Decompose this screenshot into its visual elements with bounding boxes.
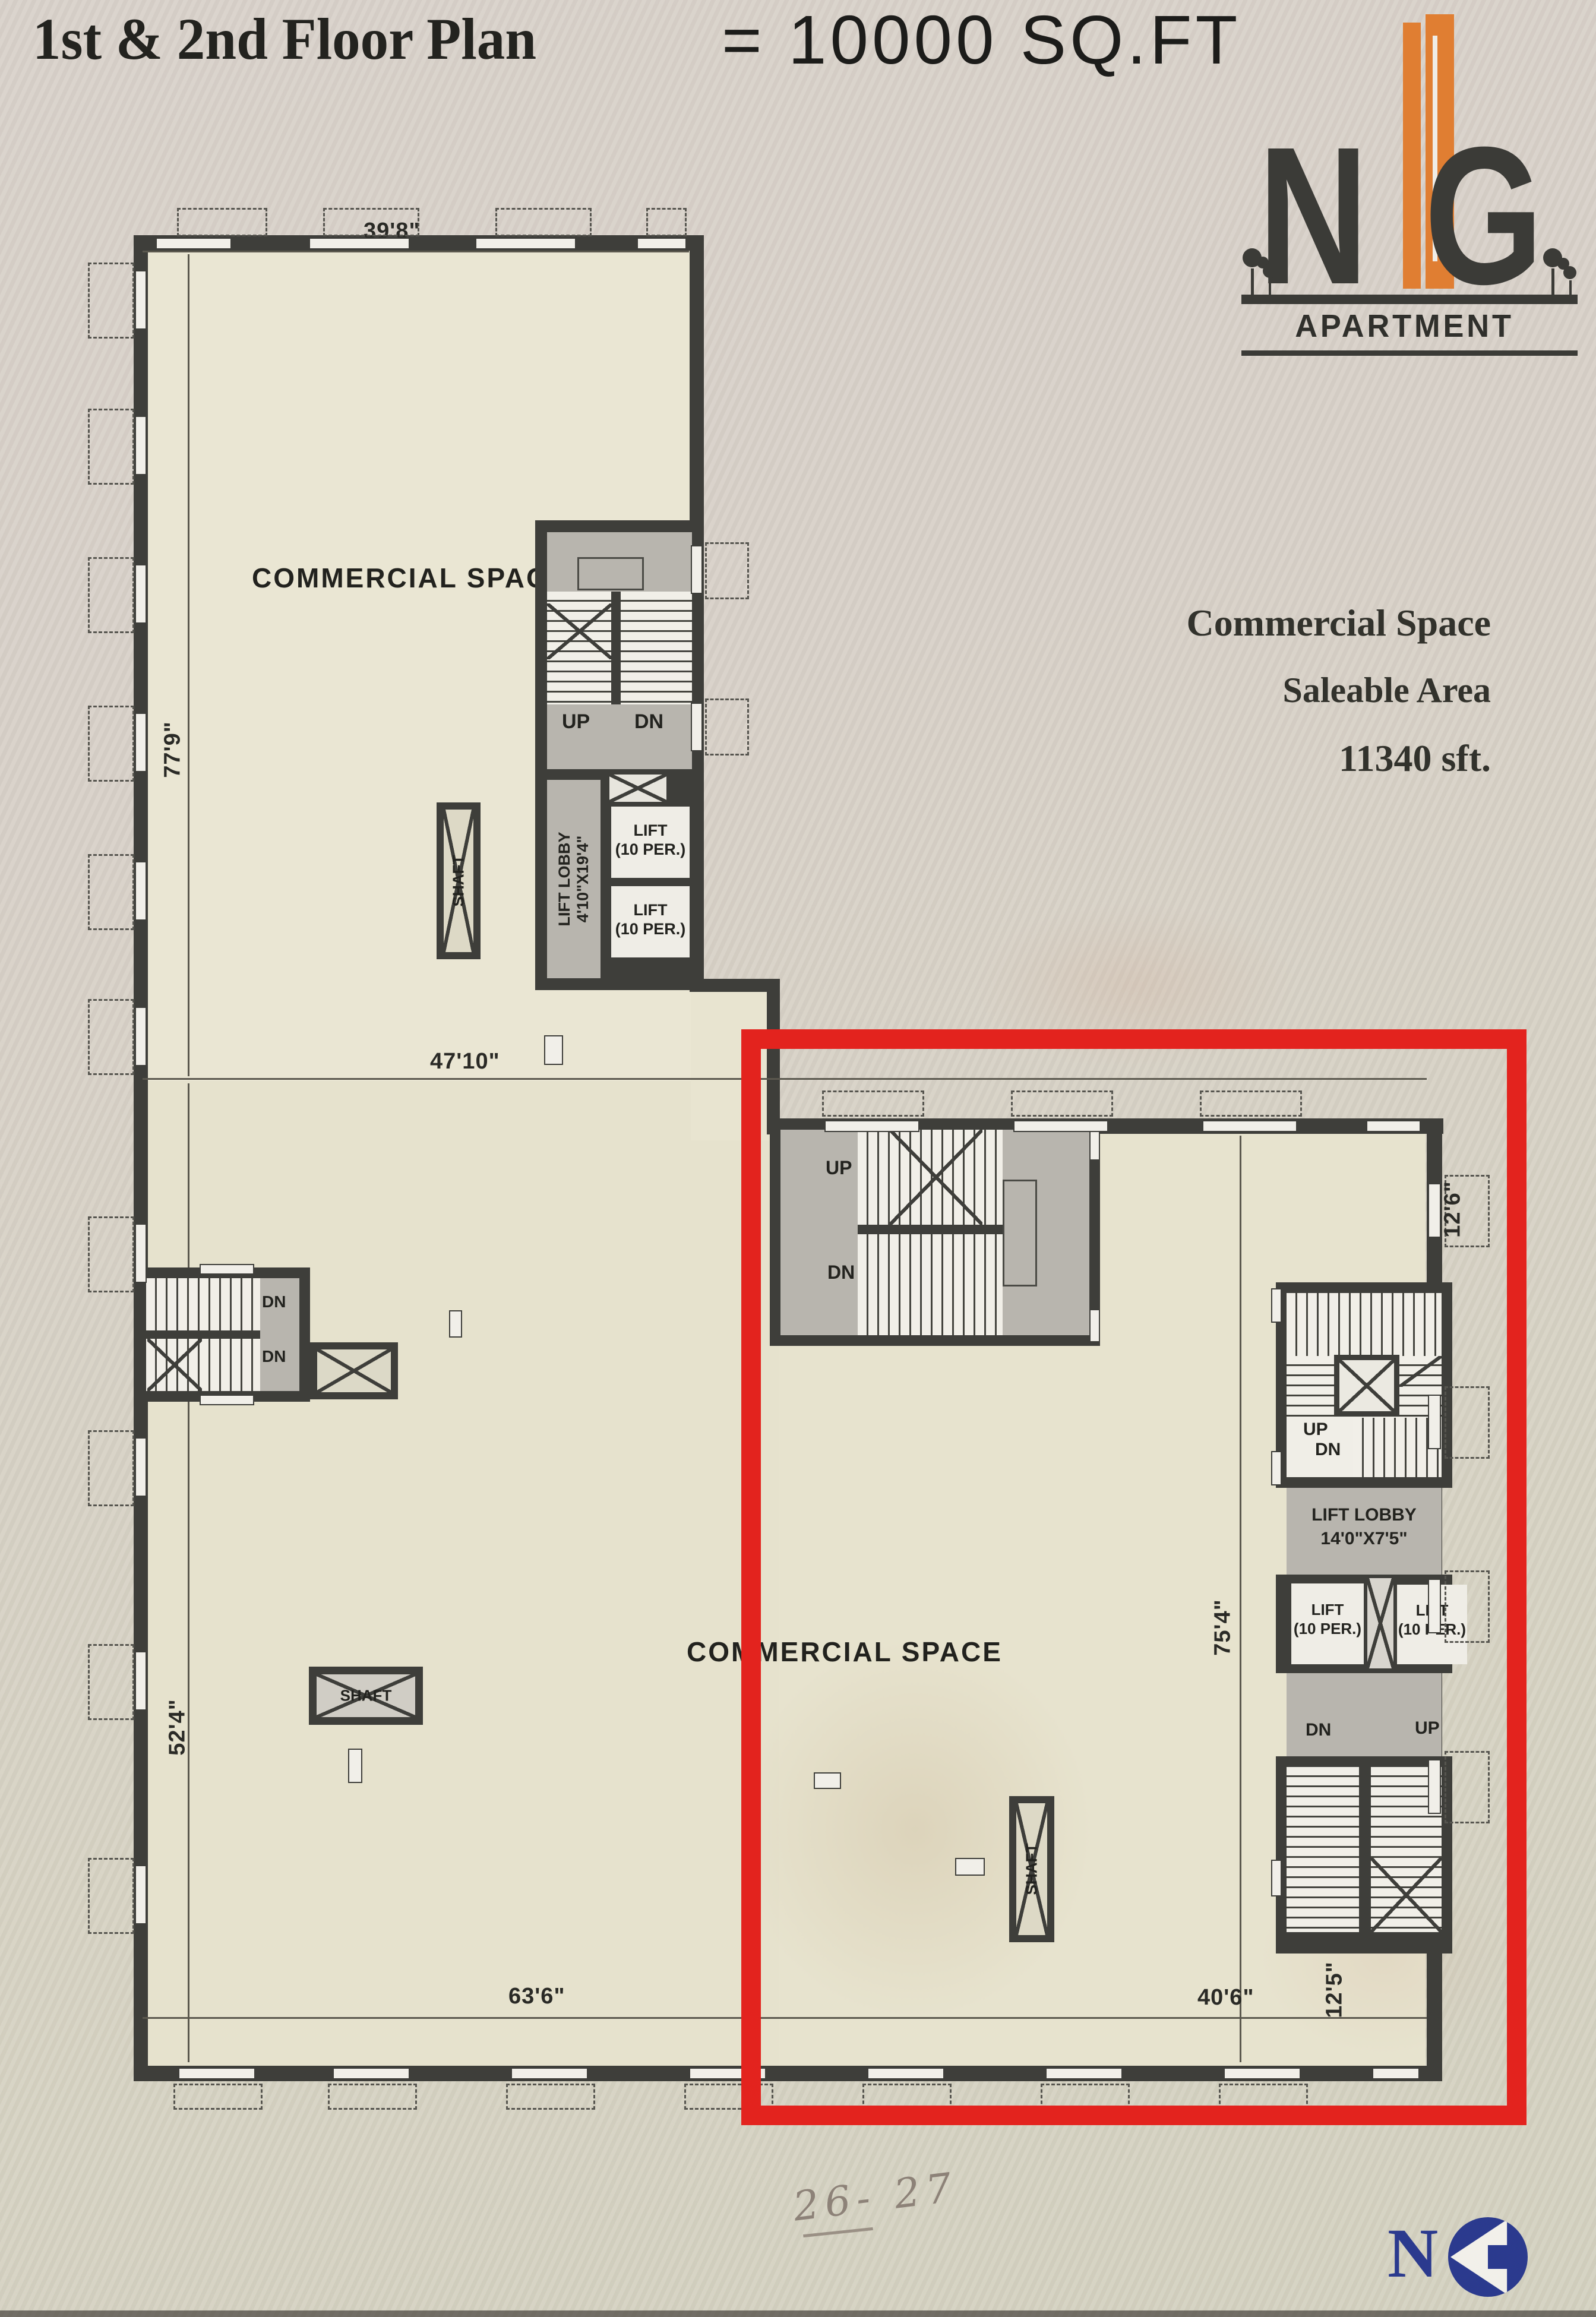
upper-core-stair-divider (611, 592, 621, 704)
window-sill (135, 416, 147, 475)
window-outline (88, 1644, 134, 1720)
window-outline (173, 2084, 263, 2110)
logo-ground-bar (1241, 295, 1578, 304)
dim-line-top (143, 251, 689, 252)
lift-lobby-main-size: 4'10"X19'4" (574, 832, 592, 927)
tree-icon (1263, 264, 1277, 278)
window-outline (323, 208, 419, 236)
lift-door-sill (691, 703, 703, 751)
lift-capacity: (10 PER.) (611, 919, 690, 938)
window-sill (156, 238, 232, 249)
window-sill (135, 861, 147, 921)
window-outline (88, 706, 134, 782)
column (348, 1749, 362, 1783)
lift-capacity: (10 PER.) (611, 840, 690, 859)
footer-logo-tab (1488, 2245, 1509, 2269)
stair-cross-icon (547, 603, 612, 659)
window-sill (178, 2068, 255, 2079)
logo-letter-g: G (1424, 129, 1543, 302)
red-highlight-box (741, 1029, 1527, 2125)
window-outline (88, 409, 134, 485)
dim-line-left-lower (188, 1083, 189, 2062)
info-area-value: 11340 sft. (1339, 736, 1491, 780)
dim-lower-left-height: 52'4" (165, 1699, 191, 1755)
commercial-space-label-upper: COMMERCIAL SPACE (252, 562, 568, 594)
lift-box-1: LIFT (10 PER.) (611, 807, 690, 878)
photo-edge-shadow (0, 2310, 1596, 2317)
up-label: UP (562, 710, 590, 734)
shaft-label: SHAFT (340, 1687, 392, 1705)
window-outline (88, 854, 134, 930)
lift-name: LIFT (611, 900, 690, 919)
window-outline (646, 208, 687, 236)
info-saleable-area: Saleable Area (1282, 670, 1491, 711)
window-outline (88, 999, 134, 1075)
dim-middle-width: 47'10" (430, 1049, 500, 1074)
tree-icon (1251, 268, 1254, 296)
window-outline (495, 208, 592, 236)
lift-lobby-main-label: LIFT LOBBY 4'10"X19'4" (555, 832, 592, 927)
page-title: 1st & 2nd Floor Plan (33, 5, 536, 73)
window-outline (506, 2084, 595, 2110)
window-outline (88, 263, 134, 339)
door-sill (200, 1395, 254, 1405)
dn-label: DN (634, 710, 663, 734)
stair-cross-icon (147, 1339, 202, 1391)
shaft-box-left (310, 1342, 398, 1399)
handwritten-underline (803, 2227, 873, 2237)
lift-name: LIFT (611, 821, 690, 840)
dim-upper-left-height: 77'9" (160, 721, 186, 777)
lift-door-sill (691, 545, 703, 594)
info-commercial-space: Commercial Space (1187, 601, 1491, 645)
area-annotation: = 10000 SQ.FT (722, 0, 1241, 80)
lift-box-2: LIFT (10 PER.) (611, 886, 690, 957)
dim-line-left-upper (188, 254, 189, 1076)
shaft-small-upper (608, 773, 668, 804)
window-sill (135, 564, 147, 624)
logo-orange-tower-icon (1403, 23, 1421, 289)
window-sill (135, 1865, 147, 1924)
window-sill (135, 1007, 147, 1066)
window-outline (88, 1216, 134, 1292)
floor-plan-page: 1st & 2nd Floor Plan = 10000 SQ.FT N G A… (0, 0, 1596, 2317)
window-outline (705, 542, 749, 599)
shaft-label: SHAFT (450, 855, 468, 907)
window-sill (309, 238, 410, 249)
window-sill (475, 238, 576, 249)
window-outline (177, 208, 267, 236)
wall-left (134, 235, 148, 2081)
window-sill (637, 238, 687, 249)
door-sill (200, 1264, 254, 1275)
floor-lower-left (147, 1081, 779, 2067)
window-sill (135, 713, 147, 772)
window-sill (135, 270, 147, 330)
shaft-x-icon (609, 775, 666, 802)
left-stair-divider (146, 1330, 260, 1339)
window-outline (705, 698, 749, 756)
lift-lobby-main-name: LIFT LOBBY (555, 832, 574, 927)
upper-core-landing-outline (577, 557, 644, 590)
window-sill (333, 2068, 410, 2079)
window-sill (135, 1437, 147, 1497)
dim-bottom-left-width: 63'6" (508, 1984, 565, 2009)
column (544, 1035, 563, 1065)
dn-label: DN (262, 1292, 286, 1311)
window-outline (328, 2084, 417, 2110)
tree-icon (1551, 268, 1554, 296)
logo-wordmark: APARTMENT (1241, 308, 1567, 344)
logo-underline (1241, 350, 1578, 356)
handwritten-note: 26- 27 (791, 2164, 960, 2230)
footer-logo-letter: N (1388, 2213, 1438, 2294)
dn-label: DN (262, 1347, 286, 1366)
window-outline (88, 557, 134, 633)
footer-logo-icon (1448, 2217, 1528, 2297)
tree-icon (1563, 266, 1576, 279)
window-outline (88, 1858, 134, 1934)
window-outline (88, 1430, 134, 1506)
window-sill (135, 1651, 147, 1711)
window-sill (135, 1224, 147, 1283)
shaft-x-icon (317, 1349, 391, 1392)
column (449, 1310, 462, 1338)
window-sill (511, 2068, 588, 2079)
